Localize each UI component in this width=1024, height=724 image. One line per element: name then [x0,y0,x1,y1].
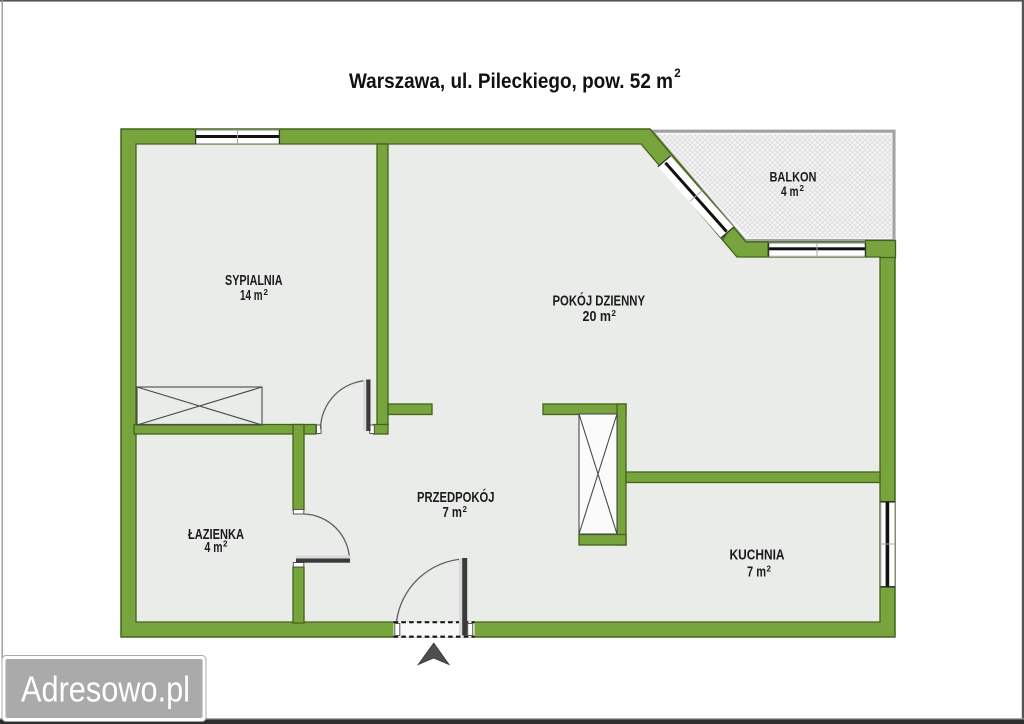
svg-text:2: 2 [463,505,468,514]
svg-text:20 m: 20 m [583,308,612,325]
svg-text:4 m: 4 m [205,539,223,556]
svg-text:7 m: 7 m [443,504,463,521]
svg-text:2: 2 [800,184,805,193]
svg-text:2: 2 [264,288,269,297]
svg-text:14 m: 14 m [240,287,263,304]
svg-text:4 m: 4 m [781,183,799,199]
svg-text:7 m: 7 m [747,564,766,581]
svg-text:2: 2 [612,309,617,318]
svg-text:Adresowo.pl: Adresowo.pl [21,669,190,710]
svg-text:2: 2 [674,68,680,80]
svg-text:POKÓJ DZIENNY: POKÓJ DZIENNY [553,292,646,310]
svg-text:2: 2 [767,564,772,573]
svg-text:KUCHNIA: KUCHNIA [730,547,785,564]
svg-text:Warszawa, ul. Pileckiego, pow.: Warszawa, ul. Pileckiego, pow. 52 m [349,70,673,93]
svg-text:2: 2 [223,540,228,549]
